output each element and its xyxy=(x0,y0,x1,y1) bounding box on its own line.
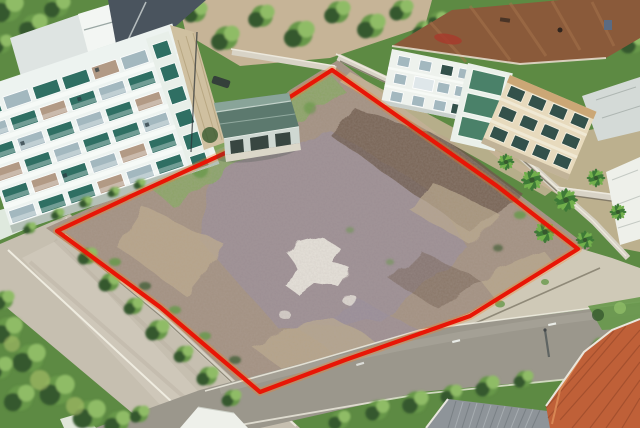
palm xyxy=(554,188,578,212)
shed-opening xyxy=(230,139,244,154)
roof-vent xyxy=(558,28,563,33)
weed xyxy=(493,245,503,252)
weed xyxy=(386,259,394,265)
palm xyxy=(521,169,543,191)
pole-top xyxy=(543,328,546,331)
shed-side-bush xyxy=(202,127,218,143)
palm xyxy=(610,204,627,221)
tuft xyxy=(541,279,549,285)
verge-bush xyxy=(614,302,626,314)
verge-bush xyxy=(592,309,604,321)
shed-opening xyxy=(275,132,291,147)
aerial-photo xyxy=(0,0,640,428)
weed xyxy=(109,258,121,266)
palm xyxy=(587,169,606,188)
weed xyxy=(346,227,354,233)
foliage-highlight xyxy=(66,397,84,415)
weed xyxy=(304,102,316,114)
palm xyxy=(498,154,515,171)
rooftop-unit xyxy=(604,20,612,30)
foliage-highlight xyxy=(30,370,50,390)
foliage-highlight xyxy=(4,336,20,352)
